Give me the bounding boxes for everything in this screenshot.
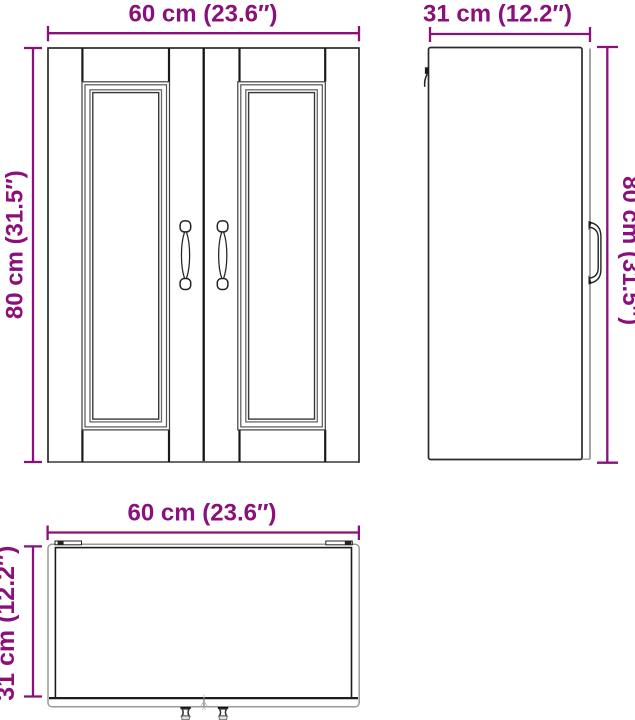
svg-text:60 cm (23.6″): 60 cm (23.6″)	[129, 1, 278, 28]
svg-text:31 cm (12.2″): 31 cm (12.2″)	[423, 1, 572, 28]
svg-text:31 cm (12.2″): 31 cm (12.2″)	[0, 546, 20, 701]
svg-text:80 cm (31.5″): 80 cm (31.5″)	[2, 170, 29, 319]
svg-text:80 cm (31.5″): 80 cm (31.5″)	[617, 176, 635, 325]
svg-text:60 cm (23.6″): 60 cm (23.6″)	[128, 499, 277, 526]
